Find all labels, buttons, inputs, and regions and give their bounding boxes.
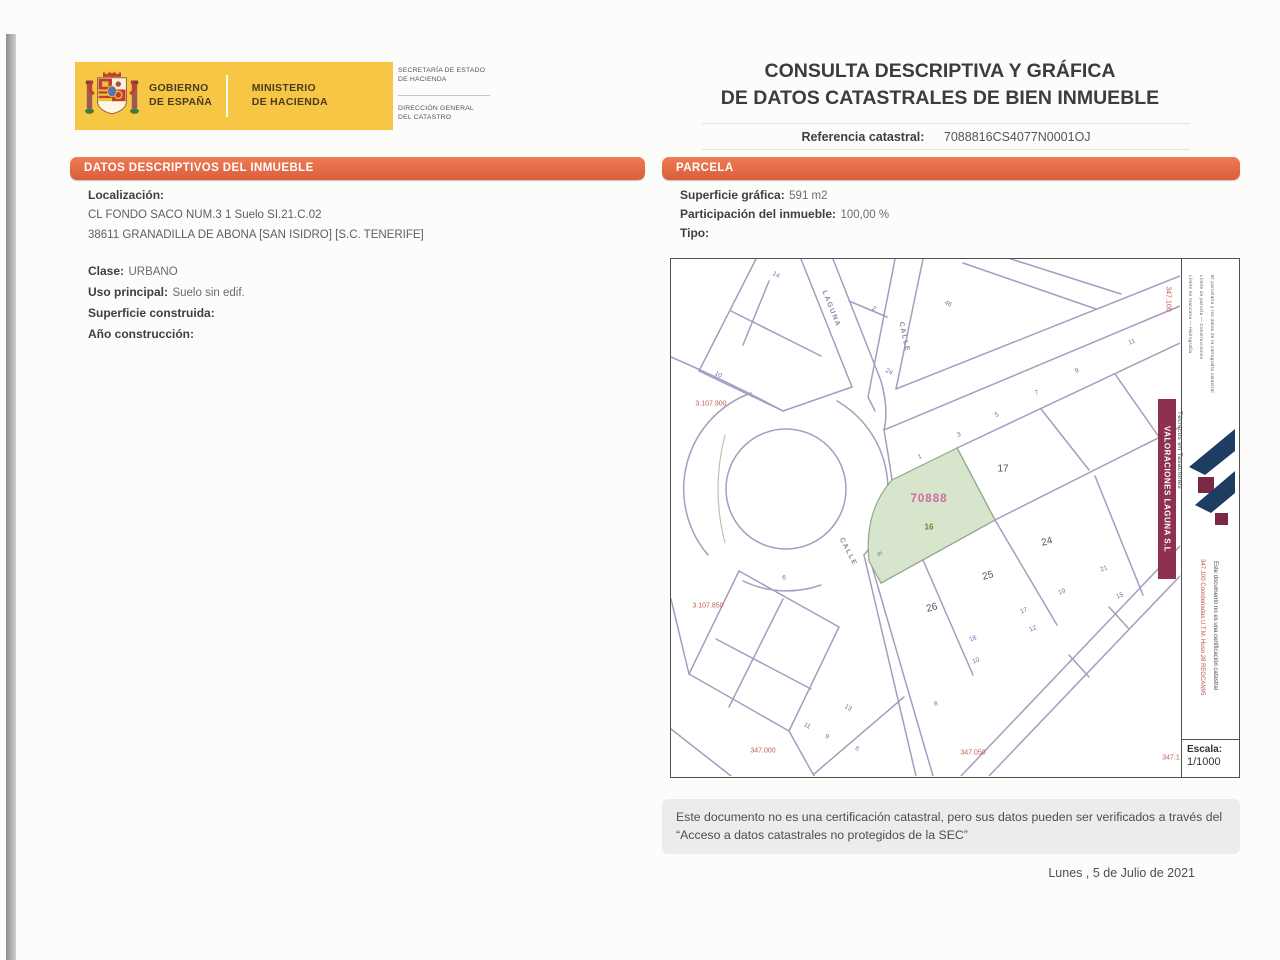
uso-label: Uso principal: bbox=[88, 285, 168, 299]
clase-label: Clase: bbox=[88, 264, 124, 278]
map-label: 347.1 bbox=[1162, 755, 1180, 762]
superficie-grafica-label: Superficie gráfica: bbox=[680, 188, 785, 202]
map-label: 17 bbox=[1019, 606, 1028, 615]
document-date: Lunes , 5 de Julio de 2021 bbox=[900, 866, 1195, 880]
map-canvas: LAGUNACALLECALLE1724252670888163.107.900… bbox=[671, 259, 1180, 776]
map-label: 24 bbox=[1040, 535, 1054, 549]
map-label: 6 bbox=[782, 575, 786, 582]
scale-box: Escala: 1/1000 bbox=[1182, 739, 1239, 777]
margin-fineprint-note: Este documento no es una certificación c… bbox=[1212, 561, 1218, 690]
page-title: CONSULTA DESCRIPTIVA Y GRÁFICADE DATOS C… bbox=[690, 58, 1190, 113]
participacion-row: Participación del inmueble: 100,00 % bbox=[680, 205, 889, 223]
superficie-construida-label: Superficie construida: bbox=[88, 306, 215, 320]
map-label: 25 bbox=[981, 569, 995, 583]
map-label: 12 bbox=[1028, 624, 1037, 633]
map-label-layer: LAGUNACALLECALLE1724252670888163.107.900… bbox=[671, 259, 1180, 776]
fineprint-line: Límite de manzana — Hidrografía bbox=[1188, 275, 1193, 353]
anio-construccion-label: Año construcción: bbox=[88, 327, 194, 341]
section-header-parcela: PARCELA bbox=[662, 157, 1240, 180]
map-label: 17 bbox=[997, 464, 1008, 475]
map-label: 11 bbox=[1128, 337, 1137, 346]
logo-divider bbox=[226, 75, 228, 117]
government-label: GOBIERNODE ESPAÑA bbox=[149, 82, 212, 109]
map-label: 9 bbox=[1074, 367, 1080, 375]
fineprint-line: Límite de parcela — Construcciones bbox=[1199, 275, 1204, 359]
tipo-label: Tipo: bbox=[680, 226, 709, 240]
map-label: 19 bbox=[1057, 587, 1066, 596]
map-label: 70888 bbox=[911, 493, 948, 505]
map-label: 3.107.850 bbox=[692, 603, 723, 610]
map-label: 46 bbox=[943, 299, 953, 309]
superficie-grafica-row: Superficie gráfica: 591 m2 bbox=[680, 186, 828, 204]
map-label: 347.100 bbox=[1165, 286, 1172, 311]
scale-label: Escala: bbox=[1187, 744, 1234, 755]
spain-coat-of-arms-icon bbox=[85, 67, 139, 126]
dept-divider bbox=[398, 95, 490, 96]
scale-value: 1/1000 bbox=[1187, 756, 1234, 768]
map-label: 6 bbox=[854, 745, 861, 753]
valoraciones-laguna-banner: VALORACIONES LAGUNA S.L bbox=[1158, 399, 1176, 579]
direccion-label: DIRECCIÓN GENERALDEL CATASTRO bbox=[398, 104, 508, 122]
section-header-datos: DATOS DESCRIPTIVOS DEL INMUEBLE bbox=[70, 157, 645, 180]
address-line-1: CL FONDO SACO NUM.3 1 Suelo SI.21.C.02 bbox=[88, 209, 322, 221]
map-label: 347.050 bbox=[960, 750, 985, 757]
superficie-construida-row: Superficie construida: bbox=[88, 304, 215, 322]
cadastral-reference-row: Referencia catastral: 7088816CS4077N0001… bbox=[702, 123, 1190, 150]
map-label: 13 bbox=[843, 703, 853, 713]
participacion-label: Participación del inmueble: bbox=[680, 207, 836, 221]
map-label: 10 bbox=[713, 370, 723, 380]
map-label: 1 bbox=[917, 453, 923, 461]
clase-row: Clase: URBANO bbox=[88, 262, 178, 280]
disclaimer-box: Este documento no es una certificación c… bbox=[662, 799, 1240, 854]
map-label: 8 bbox=[933, 700, 939, 708]
map-label: 7 bbox=[1034, 389, 1040, 397]
map-label: 24 bbox=[884, 367, 894, 377]
fineprint-line: El parcelario y los datos de la cartogra… bbox=[1210, 275, 1215, 393]
map-label: 347.000 bbox=[750, 748, 775, 755]
secretaria-label: SECRETARÍA DE ESTADODE HACIENDA bbox=[398, 66, 508, 84]
reference-label: Referencia catastral: bbox=[801, 130, 924, 144]
map-label: 21 bbox=[1099, 564, 1108, 573]
localizacion-row: Localización: bbox=[88, 186, 164, 204]
map-label: 15 bbox=[1115, 591, 1124, 600]
government-logo-box: GOBIERNODE ESPAÑA MINISTERIODE HACIENDA bbox=[75, 62, 393, 130]
cadastral-document-page: GOBIERNODE ESPAÑA MINISTERIODE HACIENDA … bbox=[0, 0, 1280, 960]
map-label: 10 bbox=[971, 656, 980, 665]
map-label: LAGUNA bbox=[820, 290, 841, 329]
superficie-grafica-value: 591 m2 bbox=[789, 190, 827, 202]
map-label: CALLE bbox=[897, 321, 910, 353]
map-label: 5 bbox=[994, 411, 1000, 419]
utm-coordinates-note: 347.100 Coordenadas U.T.M. Huso 28 REGCA… bbox=[1199, 559, 1205, 695]
map-label: 8 bbox=[875, 551, 883, 558]
reference-value: 7088816CS4077N0001OJ bbox=[944, 130, 1091, 144]
map-label: 11 bbox=[802, 721, 811, 730]
ministry-label: MINISTERIODE HACIENDA bbox=[252, 82, 328, 109]
tipo-row: Tipo: bbox=[680, 224, 709, 242]
clase-value: URBANO bbox=[128, 266, 177, 278]
anio-construccion-row: Año construcción: bbox=[88, 325, 194, 343]
map-label: 26 bbox=[925, 601, 939, 615]
cadastral-map: LAGUNACALLECALLE1724252670888163.107.900… bbox=[670, 258, 1240, 778]
map-label: 18 bbox=[968, 634, 977, 643]
valoraciones-laguna-logo bbox=[1185, 427, 1237, 537]
uso-row: Uso principal: Suelo sin edif. bbox=[88, 283, 245, 301]
map-label: 14 bbox=[771, 270, 781, 280]
map-label: 2 bbox=[871, 305, 878, 313]
scan-edge-strip bbox=[6, 34, 16, 960]
address-line-2: 38611 GRANADILLA DE ABONA [SAN ISIDRO] [… bbox=[88, 229, 424, 241]
localizacion-label: Localización: bbox=[88, 188, 164, 202]
map-label: CALLE bbox=[838, 537, 858, 568]
participacion-value: 100,00 % bbox=[841, 209, 890, 221]
map-label: 3.107.900 bbox=[695, 401, 726, 408]
map-label: 16 bbox=[925, 523, 934, 532]
uso-value: Suelo sin edif. bbox=[172, 287, 244, 299]
map-label: 3 bbox=[956, 431, 962, 439]
map-label: 9 bbox=[824, 733, 831, 741]
